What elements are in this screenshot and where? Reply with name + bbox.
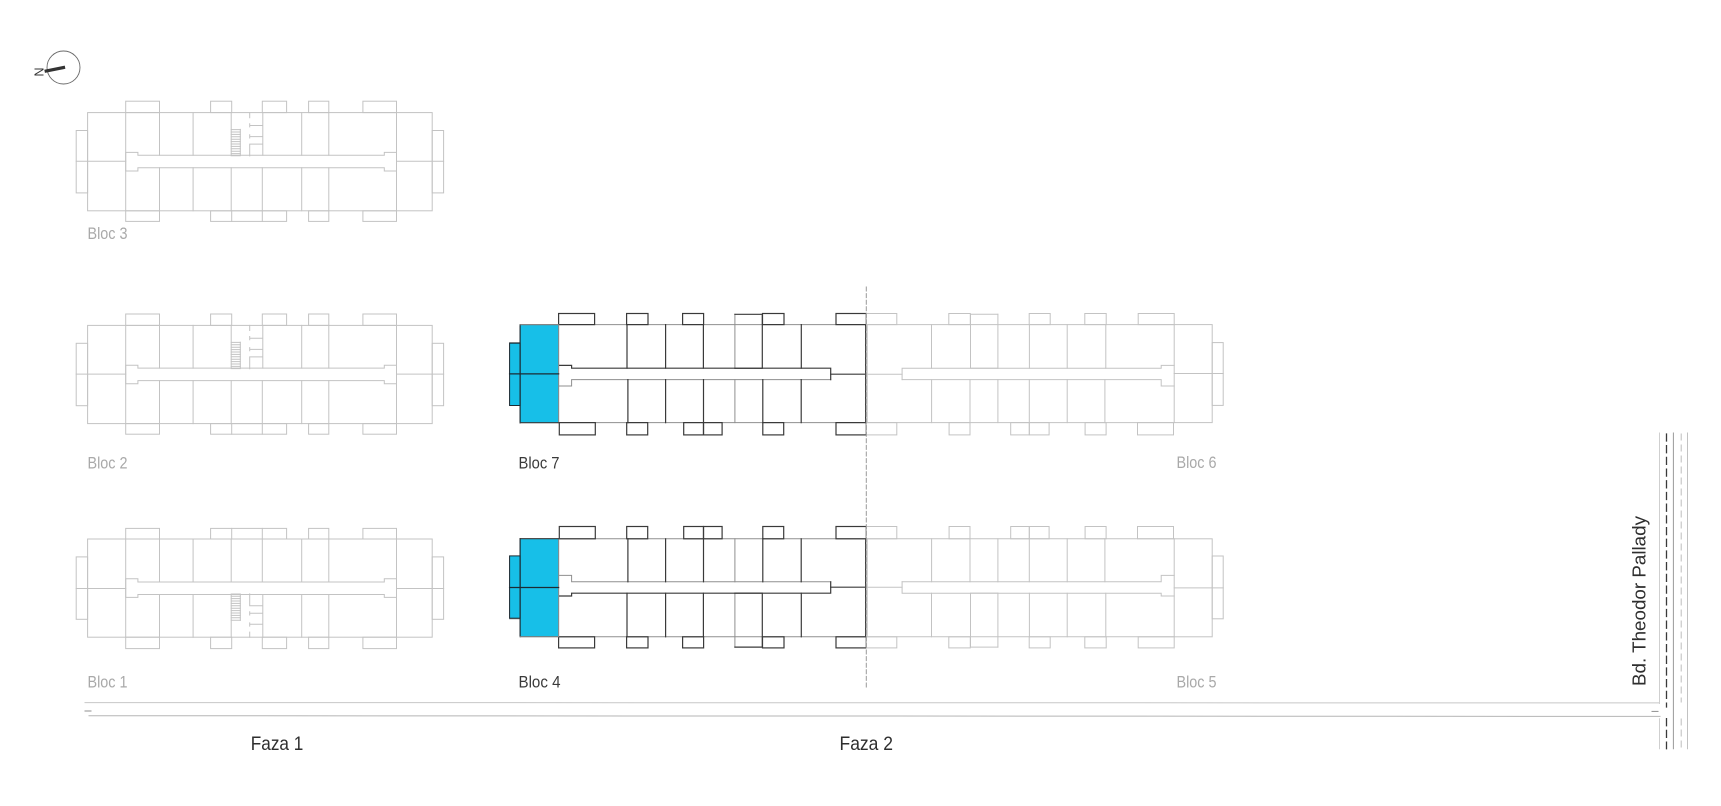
svg-text:Bloc 7: Bloc 7: [519, 455, 560, 473]
svg-text:Bloc 4: Bloc 4: [519, 674, 561, 692]
svg-text:Bloc 5: Bloc 5: [1177, 674, 1217, 692]
svg-text:N: N: [33, 67, 47, 76]
svg-text:Bloc 2: Bloc 2: [88, 455, 128, 473]
svg-text:Faza 1: Faza 1: [251, 733, 303, 755]
svg-text:Bd. Theodor Pallady: Bd. Theodor Pallady: [1629, 515, 1650, 686]
svg-text:Bloc 6: Bloc 6: [1177, 454, 1217, 472]
svg-text:Faza 2: Faza 2: [840, 733, 894, 755]
svg-text:Bloc 1: Bloc 1: [88, 674, 128, 692]
svg-text:Bloc 3: Bloc 3: [88, 225, 128, 243]
